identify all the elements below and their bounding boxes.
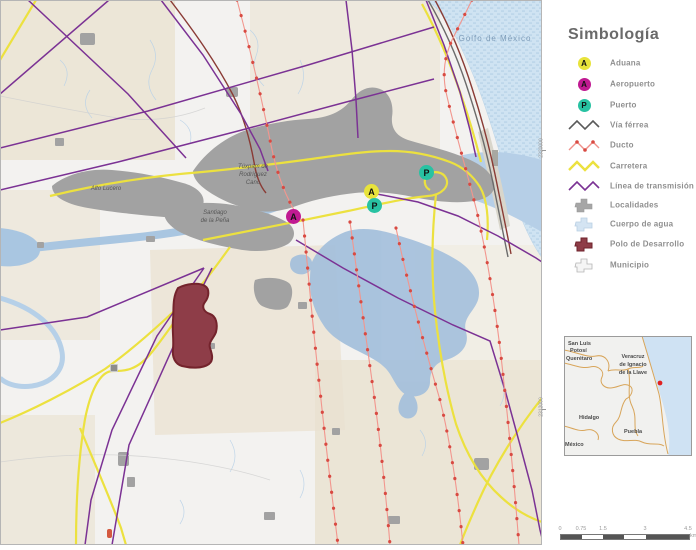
legend-item-label: Vía férrea <box>610 121 648 130</box>
map-svg <box>0 0 542 545</box>
inset-locator-map: San Luis Potosí Querétaro Veracruz de Ig… <box>564 336 692 456</box>
legend-item-localidades: Localidades <box>566 196 694 214</box>
legend-item-linea-transmision: Línea de transmisión <box>566 177 694 195</box>
legend-item-cuerpo-agua: Cuerpo de agua <box>566 215 694 233</box>
carretera-icon <box>566 157 602 175</box>
legend-item-carretera: Carretera <box>566 157 694 175</box>
aduana-marker: A <box>364 184 379 199</box>
legend-panel: Simbología A Aduana A Aeropuerto P Puert… <box>556 0 696 547</box>
legend-item-puerto: P Puerto <box>566 96 694 114</box>
legend-item-label: Línea de transmisión <box>610 182 694 191</box>
label-city-line2: Rodríguez <box>229 172 277 179</box>
label-city-line3: Cano <box>229 180 277 187</box>
inset-label-san-luis-1: San Luis <box>568 341 591 348</box>
legend-item-aeropuerto: A Aeropuerto <box>566 75 694 93</box>
label-city-line1: Túxpam de <box>229 164 277 171</box>
grid-tick-top <box>542 150 546 151</box>
inset-label-hidalgo: Hidalgo <box>579 415 599 422</box>
aduana-icon: A <box>566 54 602 72</box>
aeropuerto-icon: A <box>566 75 602 93</box>
inset-location-dot <box>658 381 663 386</box>
legend-item-label: Ducto <box>610 141 634 150</box>
legend-item-ducto: Ducto <box>566 136 694 154</box>
scalebar-tick-3: 3 <box>643 526 646 532</box>
scalebar-tick-0: 0 <box>558 526 561 532</box>
puerto-icon: P <box>566 96 602 114</box>
legend-item-label: Aduana <box>610 59 641 68</box>
legend-item-municipio: Municipio <box>566 256 694 274</box>
label-santiago-line2: de la Peña <box>194 218 236 225</box>
label-santiago-line1: Santiago <box>194 210 236 217</box>
municipio-icon <box>566 256 602 274</box>
grid-label-top: 2320000 <box>539 138 545 157</box>
localidades-icon <box>566 196 602 214</box>
legend-item-label: Localidades <box>610 201 658 210</box>
inset-label-veracruz-3: de la Llave <box>612 370 654 377</box>
inset-label-veracruz-2: de Ignacio <box>612 362 654 369</box>
grid-tick-bottom <box>542 409 546 410</box>
scalebar-tick-15: 1.5 <box>599 526 607 532</box>
legend-item-label: Aeropuerto <box>610 80 655 89</box>
legend-item-aduana: A Aduana <box>566 54 694 72</box>
puerto-marker-2: P <box>419 165 434 180</box>
scalebar-tick-45: 4.5 <box>684 526 692 532</box>
grid-label-bottom: 2312000 <box>539 397 545 416</box>
road-marker-icon <box>110 364 118 372</box>
legend-item-label: Carretera <box>610 162 647 171</box>
label-alto-lucero: Alto Lucero <box>85 186 127 193</box>
scalebar-bar <box>560 534 690 540</box>
legend-item-via-ferrea: Vía férrea <box>566 116 694 134</box>
legend-title: Simbología <box>568 26 659 44</box>
scalebar: 0 0.75 1.5 3 4.5 km <box>556 522 696 547</box>
legend-item-polo-desarrollo: Polo de Desarrollo <box>566 235 694 253</box>
small-red-marker <box>107 529 112 538</box>
legend-item-label: Polo de Desarrollo <box>610 240 684 249</box>
inset-label-veracruz-1: Veracruz <box>612 354 654 361</box>
legend-item-label: Cuerpo de agua <box>610 220 673 229</box>
inset-label-queretaro: Querétaro <box>566 356 592 363</box>
aeropuerto-marker: A <box>286 209 301 224</box>
via-ferrea-icon <box>566 116 602 134</box>
linea-transmision-icon <box>566 177 602 195</box>
label-golfo-de-mexico: Golfo de México <box>450 35 540 42</box>
ducto-icon <box>566 136 602 154</box>
polo-de-desarrollo-icon <box>566 235 602 253</box>
cuerpo-de-agua-icon <box>566 215 602 233</box>
scalebar-tick-075: 0.75 <box>576 526 587 532</box>
legend-item-label: Municipio <box>610 261 649 270</box>
inset-label-mexico: México <box>565 442 584 449</box>
inset-label-puebla: Puebla <box>624 429 642 436</box>
scalebar-unit: km <box>690 533 696 539</box>
inset-label-san-luis-2: Potosí <box>570 348 587 355</box>
puerto-marker-1: P <box>367 198 382 213</box>
map-canvas[interactable]: Golfo de México Túxpam de Rodríguez Cano… <box>0 0 542 545</box>
legend-item-label: Puerto <box>610 101 637 110</box>
